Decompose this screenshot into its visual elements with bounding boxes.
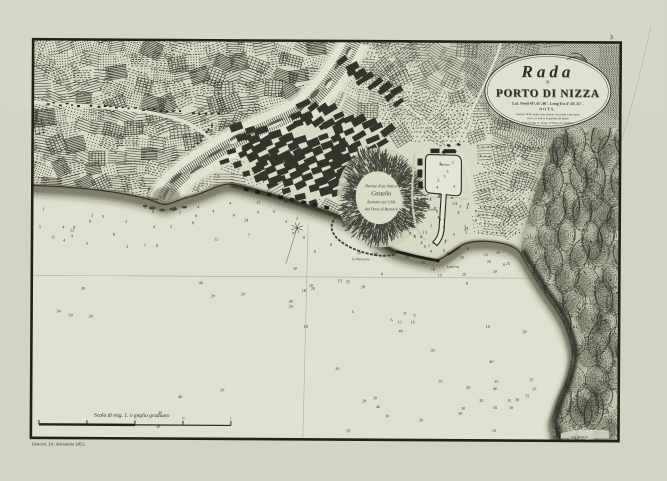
svg-text:5: 5: [446, 169, 448, 174]
svg-text:40: 40: [489, 359, 493, 364]
svg-text:15: 15: [525, 393, 529, 398]
svg-text:5: 5: [425, 230, 427, 235]
svg-text:7: 7: [159, 195, 161, 200]
svg-text:7: 7: [443, 218, 445, 223]
svg-text:7: 7: [248, 233, 250, 238]
svg-text:18: 18: [302, 288, 306, 293]
svg-text:3: 3: [125, 219, 127, 224]
svg-text:7: 7: [144, 243, 146, 248]
svg-text:25: 25: [346, 279, 350, 284]
svg-text:sono e le lettere la qualita d: sono e le lettere la qualita del fondo: [527, 116, 569, 120]
svg-text:5: 5: [443, 174, 445, 179]
svg-text:¾: ¾: [182, 416, 185, 420]
svg-text:15: 15: [438, 273, 442, 278]
svg-text:a la Reserva: a la Reserva: [571, 435, 588, 439]
svg-text:35: 35: [529, 377, 533, 382]
svg-text:30: 30: [430, 348, 434, 353]
svg-text:9: 9: [257, 210, 259, 215]
svg-text:6: 6: [86, 241, 88, 246]
svg-text:40: 40: [398, 328, 402, 333]
svg-text:7: 7: [430, 224, 432, 229]
svg-text:9: 9: [71, 234, 73, 239]
svg-text:10: 10: [421, 260, 425, 265]
svg-text:35: 35: [346, 428, 350, 433]
svg-text:15: 15: [338, 278, 342, 283]
svg-text:12: 12: [398, 319, 402, 324]
svg-text:3: 3: [144, 205, 146, 210]
svg-text:12: 12: [484, 252, 488, 257]
svg-text:10: 10: [357, 250, 361, 255]
svg-text:5: 5: [414, 235, 416, 240]
svg-text:3: 3: [422, 230, 424, 235]
svg-text:20: 20: [211, 293, 215, 298]
svg-text:20: 20: [335, 366, 339, 371]
svg-text:35: 35: [479, 398, 483, 403]
svg-text:PORTO DI NIZZA: PORTO DI NIZZA: [496, 87, 600, 100]
svg-text:15: 15: [411, 319, 415, 324]
svg-text:8: 8: [466, 281, 468, 286]
svg-text:15: 15: [492, 428, 496, 433]
svg-text:5: 5: [292, 231, 294, 236]
svg-text:6: 6: [414, 313, 416, 318]
svg-text:8: 8: [503, 262, 505, 267]
svg-text:20: 20: [241, 292, 245, 297]
svg-text:8: 8: [174, 205, 176, 210]
svg-text:6: 6: [314, 249, 316, 254]
svg-text:40: 40: [199, 280, 203, 285]
svg-text:3: 3: [459, 204, 461, 209]
svg-text:5: 5: [439, 161, 441, 166]
svg-text:12: 12: [51, 234, 55, 239]
svg-text:25: 25: [460, 255, 464, 260]
svg-text:10: 10: [496, 250, 500, 255]
svg-text:12: 12: [70, 228, 74, 233]
svg-text:8: 8: [195, 213, 197, 218]
svg-text:6: 6: [233, 212, 235, 217]
svg-text:20: 20: [522, 329, 526, 334]
svg-text:6: 6: [436, 209, 438, 214]
svg-text:20: 20: [532, 386, 536, 391]
svg-text:30: 30: [81, 286, 85, 291]
svg-text:35: 35: [494, 379, 498, 384]
svg-text:25: 25: [438, 379, 442, 384]
svg-text:Castello: Castello: [371, 191, 391, 197]
svg-text:15: 15: [507, 398, 511, 403]
svg-text:8: 8: [381, 271, 383, 276]
svg-text:20: 20: [309, 283, 313, 288]
svg-text:2: 2: [320, 208, 322, 213]
svg-text:20: 20: [361, 284, 365, 289]
svg-text:20: 20: [220, 387, 224, 392]
svg-text:8: 8: [303, 235, 305, 240]
svg-text:9: 9: [315, 203, 317, 208]
svg-text:8: 8: [89, 219, 91, 224]
svg-text:7: 7: [428, 244, 430, 249]
svg-text:20: 20: [289, 304, 293, 309]
svg-text:NOTA.: NOTA.: [539, 107, 556, 111]
svg-text:8: 8: [330, 242, 332, 247]
svg-text:6: 6: [391, 317, 393, 322]
svg-text:30: 30: [89, 314, 93, 319]
svg-text:3: 3: [610, 34, 613, 41]
svg-text:F. Paione: F. Paione: [142, 196, 159, 201]
svg-text:3: 3: [126, 244, 128, 249]
svg-text:8: 8: [535, 250, 537, 255]
svg-text:20: 20: [362, 398, 366, 403]
svg-text:dal Duca di Berwick: dal Duca di Berwick: [365, 206, 398, 211]
svg-text:Lat. Nord 43°.41'.46″. Long Es: Lat. Nord 43°.41'.46″. Long Est 4°.56'.2…: [512, 102, 583, 106]
svg-text:½: ½: [134, 416, 137, 420]
svg-text:1: 1: [230, 416, 232, 420]
svg-text:20: 20: [487, 259, 491, 264]
svg-text:5: 5: [453, 232, 455, 237]
svg-text:La Balaustra: La Balaustra: [351, 257, 370, 261]
svg-text:12: 12: [256, 200, 260, 205]
svg-text:18: 18: [485, 324, 489, 329]
svg-text:3: 3: [444, 240, 446, 245]
svg-text:30: 30: [458, 411, 462, 416]
svg-text:Lanterna: Lanterna: [446, 265, 460, 269]
svg-text:6: 6: [443, 225, 445, 230]
svg-text:6: 6: [273, 209, 275, 214]
svg-text:40: 40: [289, 299, 293, 304]
svg-text:2: 2: [244, 218, 246, 223]
svg-text:3: 3: [465, 230, 467, 235]
svg-text:5: 5: [39, 224, 41, 229]
svg-text:8: 8: [192, 220, 194, 225]
svg-text:18: 18: [303, 324, 307, 329]
svg-text:6: 6: [152, 209, 154, 214]
svg-text:Scala di mig. 1. o miglio grad: Scala di mig. 1. o miglio graduato: [94, 413, 170, 419]
svg-text:40: 40: [376, 404, 380, 409]
svg-text:3: 3: [42, 206, 44, 211]
svg-text:8: 8: [404, 310, 406, 315]
svg-text:25: 25: [506, 261, 510, 266]
svg-text:20: 20: [493, 269, 497, 274]
svg-text:30: 30: [509, 405, 513, 410]
svg-text:6: 6: [467, 246, 469, 251]
svg-text:5: 5: [170, 224, 172, 229]
svg-text:40: 40: [178, 394, 182, 399]
svg-text:18: 18: [431, 267, 435, 272]
svg-text:5: 5: [437, 178, 439, 183]
svg-text:5: 5: [102, 214, 104, 219]
svg-text:3: 3: [451, 160, 453, 165]
svg-text:35: 35: [493, 405, 497, 410]
svg-text:3: 3: [452, 201, 454, 206]
svg-text:30: 30: [385, 413, 389, 418]
svg-text:12: 12: [374, 251, 378, 256]
svg-text:6: 6: [443, 248, 445, 253]
svg-text:8: 8: [284, 199, 286, 204]
svg-text:12: 12: [214, 236, 218, 241]
svg-text:8: 8: [374, 235, 376, 240]
svg-text:5: 5: [296, 216, 298, 221]
svg-text:50: 50: [69, 313, 73, 318]
svg-text:25: 25: [462, 272, 466, 277]
svg-text:5: 5: [400, 233, 402, 238]
svg-text:20: 20: [373, 395, 377, 400]
svg-text:30: 30: [419, 418, 423, 423]
svg-text:8: 8: [393, 235, 395, 240]
svg-text:6: 6: [352, 309, 354, 314]
svg-text:40: 40: [493, 386, 497, 391]
svg-text:30: 30: [515, 397, 519, 402]
svg-text:20: 20: [405, 254, 409, 259]
svg-text:Rovine d'un Antico: Rovine d'un Antico: [364, 183, 397, 188]
svg-text:distrutto nel 1706: distrutto nel 1706: [367, 199, 395, 204]
svg-text:6: 6: [424, 244, 426, 249]
svg-text:8: 8: [156, 243, 158, 248]
svg-text:20: 20: [466, 385, 470, 390]
svg-text:8: 8: [113, 232, 115, 237]
svg-text:20: 20: [446, 251, 450, 256]
svg-text:6: 6: [397, 234, 399, 239]
svg-text:2: 2: [179, 210, 181, 215]
svg-text:Porto: Porto: [427, 208, 437, 212]
svg-text:30: 30: [293, 266, 297, 271]
svg-text:50: 50: [57, 308, 61, 313]
svg-text:5: 5: [439, 217, 441, 222]
svg-text:Cost. In Siga. R. Tempo 10 Per: Cost. In Siga. R. Tempo 10 Pertica St. S…: [522, 122, 574, 125]
svg-text:3: 3: [91, 213, 93, 218]
